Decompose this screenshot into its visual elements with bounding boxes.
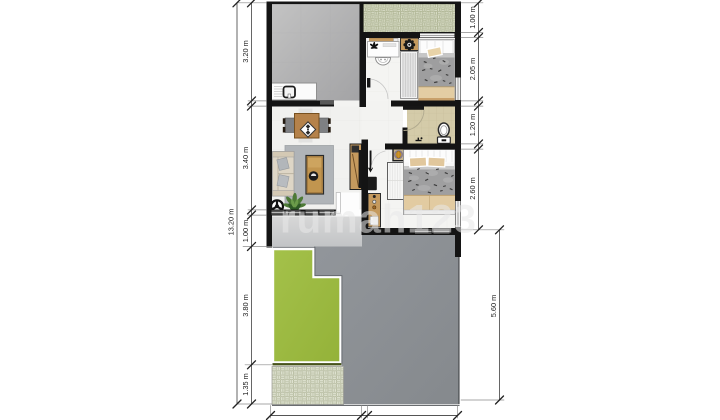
svg-text:3.40 m: 3.40 m (241, 147, 250, 170)
svg-text:1.00 m: 1.00 m (241, 220, 250, 243)
svg-text:2.05 m: 2.05 m (468, 58, 477, 81)
svg-text:rumah123: rumah123 (280, 198, 477, 242)
svg-text:13.20 m: 13.20 m (227, 209, 236, 236)
svg-text:1.00 m: 1.00 m (468, 6, 477, 29)
svg-text:1.20 m: 1.20 m (468, 114, 477, 137)
svg-text:3.20 m: 3.20 m (241, 40, 250, 63)
svg-text:2.60 m: 2.60 m (468, 177, 477, 200)
svg-text:3.80 m: 3.80 m (241, 294, 250, 317)
svg-text:1.35 m: 1.35 m (241, 373, 250, 396)
svg-text:5.60 m: 5.60 m (489, 295, 498, 318)
